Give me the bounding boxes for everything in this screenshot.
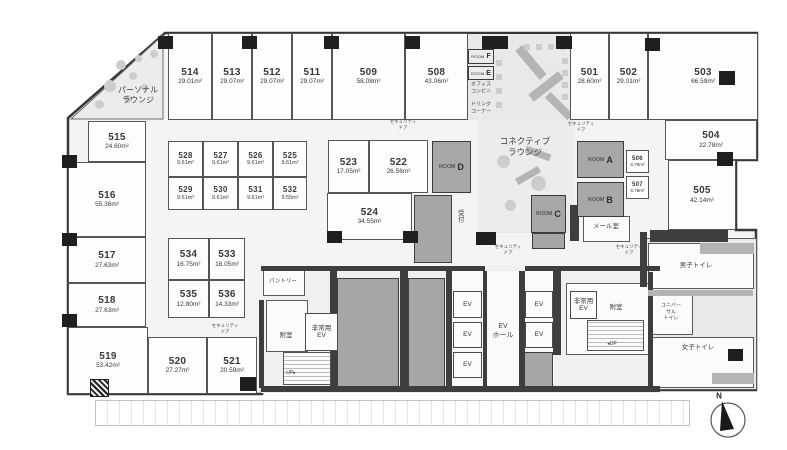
pillar xyxy=(645,38,660,51)
meeting-room-word: ROOM xyxy=(588,157,604,163)
furniture xyxy=(712,373,754,384)
security-door-label: セキュリティ ドア xyxy=(390,119,417,131)
meeting-room-a: ROOMA xyxy=(577,141,624,178)
room-area: 14.33m² xyxy=(215,301,239,308)
meeting-room-f: ROOMF xyxy=(468,49,494,64)
shaft-block xyxy=(414,195,452,263)
room-number: 518 xyxy=(98,296,116,307)
furniture xyxy=(531,176,546,191)
furniture xyxy=(536,44,542,50)
pillar xyxy=(62,233,77,246)
pillar xyxy=(324,36,339,49)
ev-hall-label: EV ホール xyxy=(493,322,514,340)
universal-toilet-label: ユニバー サル トイレ xyxy=(661,302,681,322)
room-number: 530 xyxy=(213,186,227,194)
room-515: 51524.60m² xyxy=(88,121,146,162)
elevator-ev: EV xyxy=(453,352,482,378)
room-area: 26.56m² xyxy=(387,168,411,175)
room-number: 515 xyxy=(108,133,126,144)
room-509: 50958.08m² xyxy=(332,33,405,120)
connective-lounge-label: コネクティブ ラウンジ xyxy=(500,136,551,158)
room-number: 502 xyxy=(620,68,638,79)
shaft-block xyxy=(524,352,553,388)
room-526: 5269.61m² xyxy=(238,141,273,177)
service-room xyxy=(266,300,308,352)
room-number: 525 xyxy=(283,152,297,160)
meeting-room-letter: F xyxy=(486,53,490,60)
room-area: 53.42m² xyxy=(96,362,120,369)
meeting-room-letter: C xyxy=(554,209,561,219)
room-area: 9.61m² xyxy=(177,160,194,166)
room-525: 5259.61m² xyxy=(273,141,307,177)
vestibule-left-label: 附室 xyxy=(280,332,293,340)
furniture xyxy=(562,82,568,88)
room-area: 34.55m² xyxy=(358,218,382,225)
furniture xyxy=(648,290,753,296)
security-door-label: セキュリティ ドア xyxy=(616,244,643,256)
elevator-ev: EV xyxy=(453,291,482,318)
room-number: 524 xyxy=(361,208,379,219)
room-area: 6.78m² xyxy=(630,188,644,193)
furniture xyxy=(496,88,502,94)
elevator-ev: EV xyxy=(525,291,553,318)
room-529: 5299.61m² xyxy=(168,177,203,210)
furniture xyxy=(116,60,126,70)
room-area: 6.78m² xyxy=(630,162,644,167)
security-door-label: セキュリティ ドア xyxy=(212,323,239,335)
meeting-room-word: ROOM xyxy=(536,211,552,217)
room-527: 5279.61m² xyxy=(203,141,238,177)
room-number: 520 xyxy=(169,357,187,368)
furniture xyxy=(150,50,158,58)
room-503: 50366.59m² xyxy=(648,33,758,120)
room-number: 521 xyxy=(223,357,241,368)
pillar xyxy=(240,377,256,391)
room-531: 5319.61m² xyxy=(238,177,273,210)
stairs xyxy=(283,352,331,385)
hatched-pillar xyxy=(90,379,109,397)
room-area: 43.06m² xyxy=(425,78,449,85)
furniture xyxy=(496,102,502,108)
room-536: 53614.33m² xyxy=(209,280,245,318)
room-area: 9.61m² xyxy=(247,195,264,201)
room-area: 9.61m² xyxy=(212,195,229,201)
room-506: 5066.78m² xyxy=(626,150,649,173)
room-number: 516 xyxy=(98,191,116,202)
pillar xyxy=(158,36,173,49)
room-number: 511 xyxy=(303,68,320,79)
room-area: 29.01m² xyxy=(617,78,641,85)
pillar xyxy=(717,152,733,166)
room-501: 50128.60m² xyxy=(570,33,609,120)
personal-lounge-zone xyxy=(71,35,163,119)
shaft-block xyxy=(337,278,399,388)
stairs-up-right-label: ◂UP xyxy=(607,341,616,348)
wall-segment xyxy=(261,386,660,392)
room-area: 9.61m² xyxy=(212,160,229,166)
room-518: 51827.63m² xyxy=(68,283,146,327)
floor-plan: 51429.01m²51329.07m²51229.07m²51129.07m²… xyxy=(0,0,787,450)
pillar xyxy=(728,349,743,361)
room-number: 501 xyxy=(581,68,599,79)
pillar xyxy=(476,232,496,245)
room-number: 533 xyxy=(218,250,236,261)
room-522: 52226.56m² xyxy=(369,140,428,193)
room-512: 51229.07m² xyxy=(252,33,292,120)
pillar xyxy=(242,36,257,49)
room-number: 529 xyxy=(178,186,192,194)
room-number: 528 xyxy=(178,152,192,160)
room-number: 519 xyxy=(99,352,117,363)
room-area: 28.60m² xyxy=(578,78,602,85)
room-number: 526 xyxy=(248,152,262,160)
furniture xyxy=(496,74,502,80)
compass-north-icon xyxy=(700,392,760,450)
pillar xyxy=(556,36,572,49)
furniture xyxy=(496,60,502,66)
room-number: 535 xyxy=(180,290,198,301)
room-area: 58.08m² xyxy=(357,78,381,85)
room-area: 20.59m² xyxy=(220,367,244,374)
pillar xyxy=(62,155,77,168)
room-530: 5309.61m² xyxy=(203,177,238,210)
security-door-label: セキュリティ ドア xyxy=(568,121,595,133)
furniture xyxy=(104,80,116,92)
room-area: 29.01m² xyxy=(178,78,202,85)
pillar xyxy=(62,314,77,327)
wall-segment xyxy=(650,230,728,242)
room-number: 505 xyxy=(693,186,711,197)
room-area: 66.59m² xyxy=(691,78,715,85)
meeting-room-letter: A xyxy=(606,155,613,165)
wall-segment xyxy=(446,271,452,388)
room-528: 5289.61m² xyxy=(168,141,203,177)
room-534: 53416.75m² xyxy=(168,238,209,280)
room-number: 531 xyxy=(248,186,262,194)
furniture xyxy=(562,94,568,100)
shaft-block xyxy=(532,233,565,249)
room-517: 51727.63m² xyxy=(68,237,146,283)
room-514: 51429.01m² xyxy=(168,33,212,120)
room-504: 50422.78m² xyxy=(665,120,757,160)
room-number: 512 xyxy=(263,68,281,79)
room-number: 514 xyxy=(181,68,199,79)
room-number: 508 xyxy=(428,68,446,79)
meeting-room-b: ROOMB xyxy=(577,182,624,217)
room-number: 509 xyxy=(360,68,378,79)
furniture xyxy=(562,58,568,64)
mail-room-label: メール室 xyxy=(593,223,619,231)
vestibule-right-label: 附室 xyxy=(610,304,623,312)
room-area: 24.60m² xyxy=(105,143,129,150)
personal-lounge-label: パーソナル ラウンジ xyxy=(118,86,158,107)
room-520: 52027.27m² xyxy=(148,337,207,394)
room-number: 503 xyxy=(694,68,712,79)
room-area: 9.61m² xyxy=(177,195,194,201)
room-area: 27.27m² xyxy=(166,367,190,374)
room-area: 29.07m² xyxy=(300,78,324,85)
room-number: 504 xyxy=(702,131,720,142)
office-conbini-label: オフィス コンビニ xyxy=(471,82,491,95)
emergency-elevator: 非常用 EV xyxy=(570,291,597,319)
wall-segment xyxy=(400,271,408,388)
room-area: 55.36m² xyxy=(95,201,119,208)
room-area: 27.63m² xyxy=(95,307,119,314)
elevator-ev: EV xyxy=(525,322,553,348)
room-area: 12.80m² xyxy=(177,301,201,308)
furniture xyxy=(548,44,554,50)
room-502: 50229.01m² xyxy=(609,33,648,120)
room-area: 9.61m² xyxy=(281,160,298,166)
room-area: 29.07m² xyxy=(260,78,284,85)
room-area: 18.05m² xyxy=(215,261,239,268)
security-door-label: セキュリティ ドア xyxy=(495,244,522,256)
pillar xyxy=(327,231,342,243)
room-number: 513 xyxy=(223,68,241,79)
meeting-room-word: ROOM xyxy=(588,197,604,203)
bottom-eaves-strip xyxy=(95,400,690,426)
room-number: 517 xyxy=(98,251,116,262)
room-516: 51655.36m² xyxy=(68,162,146,237)
room-532: 5329.55m² xyxy=(273,177,307,210)
reception-label: 受付 xyxy=(455,210,463,223)
meeting-room-letter: B xyxy=(606,195,613,205)
shaft-block xyxy=(408,278,445,388)
pillar xyxy=(405,36,420,49)
furniture xyxy=(135,55,142,62)
meeting-room-d: ROOMD xyxy=(432,141,471,193)
meeting-room-word: ROOM xyxy=(471,71,484,76)
room-area: 27.63m² xyxy=(95,262,119,269)
room-area: 9.61m² xyxy=(247,160,264,166)
stairs-up-left-label: UP▸ xyxy=(286,370,295,377)
room-number: 523 xyxy=(340,158,358,169)
furniture xyxy=(95,100,104,109)
room-area: 9.55m² xyxy=(281,195,298,201)
furniture xyxy=(505,200,516,211)
meeting-room-e: ROOME xyxy=(468,66,494,80)
meeting-room-c: ROOMC xyxy=(531,195,566,233)
room-number: 534 xyxy=(180,250,198,261)
wall-segment xyxy=(553,271,561,355)
wall-segment xyxy=(259,300,264,388)
room-number: 536 xyxy=(218,290,236,301)
wall-segment xyxy=(483,271,487,386)
room-area: 17.05m² xyxy=(337,168,361,175)
room-505: 50542.14m² xyxy=(668,160,736,230)
pantry-label: パントリー xyxy=(269,278,297,285)
womens-toilet-label: 女子トイレ xyxy=(682,344,715,352)
furniture xyxy=(129,72,137,80)
furniture xyxy=(562,70,568,76)
room-number: 527 xyxy=(213,152,227,160)
compass-north-label: N xyxy=(716,392,722,401)
room-523: 52317.05m² xyxy=(328,140,369,193)
room-area: 22.78m² xyxy=(699,142,723,149)
pillar xyxy=(403,231,418,243)
pillar xyxy=(719,71,735,85)
elevator-ev: EV xyxy=(453,322,482,348)
meeting-room-letter: D xyxy=(457,162,464,172)
pillar xyxy=(482,36,508,49)
wall-segment xyxy=(640,232,647,287)
room-area: 42.14m² xyxy=(690,197,714,204)
room-507: 5076.78m² xyxy=(626,176,649,199)
room-area: 29.07m² xyxy=(220,78,244,85)
room-535: 53512.80m² xyxy=(168,280,209,318)
meeting-room-letter: E xyxy=(486,70,491,77)
meeting-room-word: ROOM xyxy=(471,54,484,59)
mens-toilet-label: 男子トイレ xyxy=(680,262,713,270)
room-area: 16.75m² xyxy=(177,261,201,268)
room-533: 53318.05m² xyxy=(209,238,245,280)
emergency-elevator: 非常用 EV xyxy=(305,313,338,351)
drink-corner-label: ドリンク コーナー xyxy=(471,102,491,115)
meeting-room-word: ROOM xyxy=(439,164,455,170)
room-number: 522 xyxy=(390,158,408,169)
furniture xyxy=(700,243,754,254)
furniture xyxy=(524,44,530,50)
room-number: 532 xyxy=(283,186,297,194)
